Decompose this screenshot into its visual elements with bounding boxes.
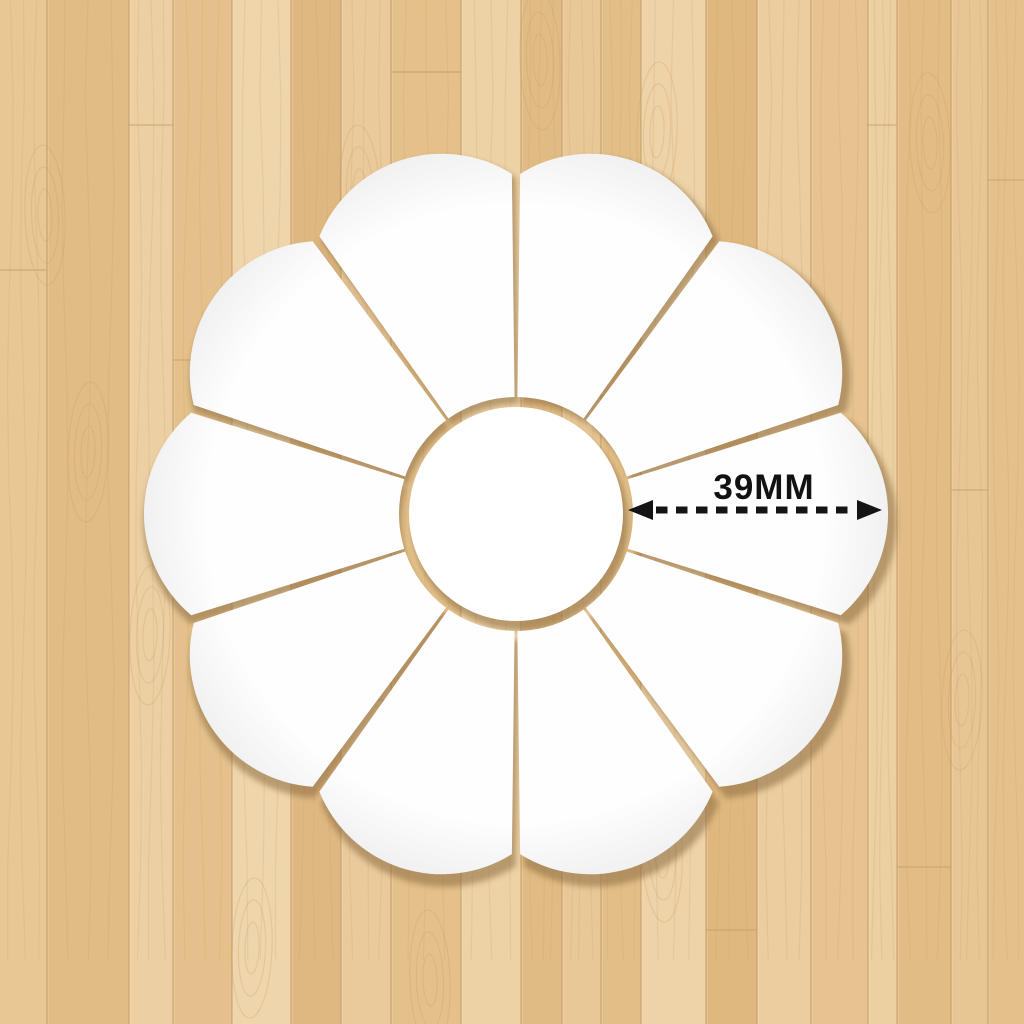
product-photo-image: 39MM	[0, 0, 1024, 1024]
product-photo: 39MM	[0, 0, 1024, 1024]
center-circle-mirror	[409, 407, 623, 621]
dimension-label: 39MM	[713, 468, 814, 507]
wood-plank	[47, 0, 129, 1024]
